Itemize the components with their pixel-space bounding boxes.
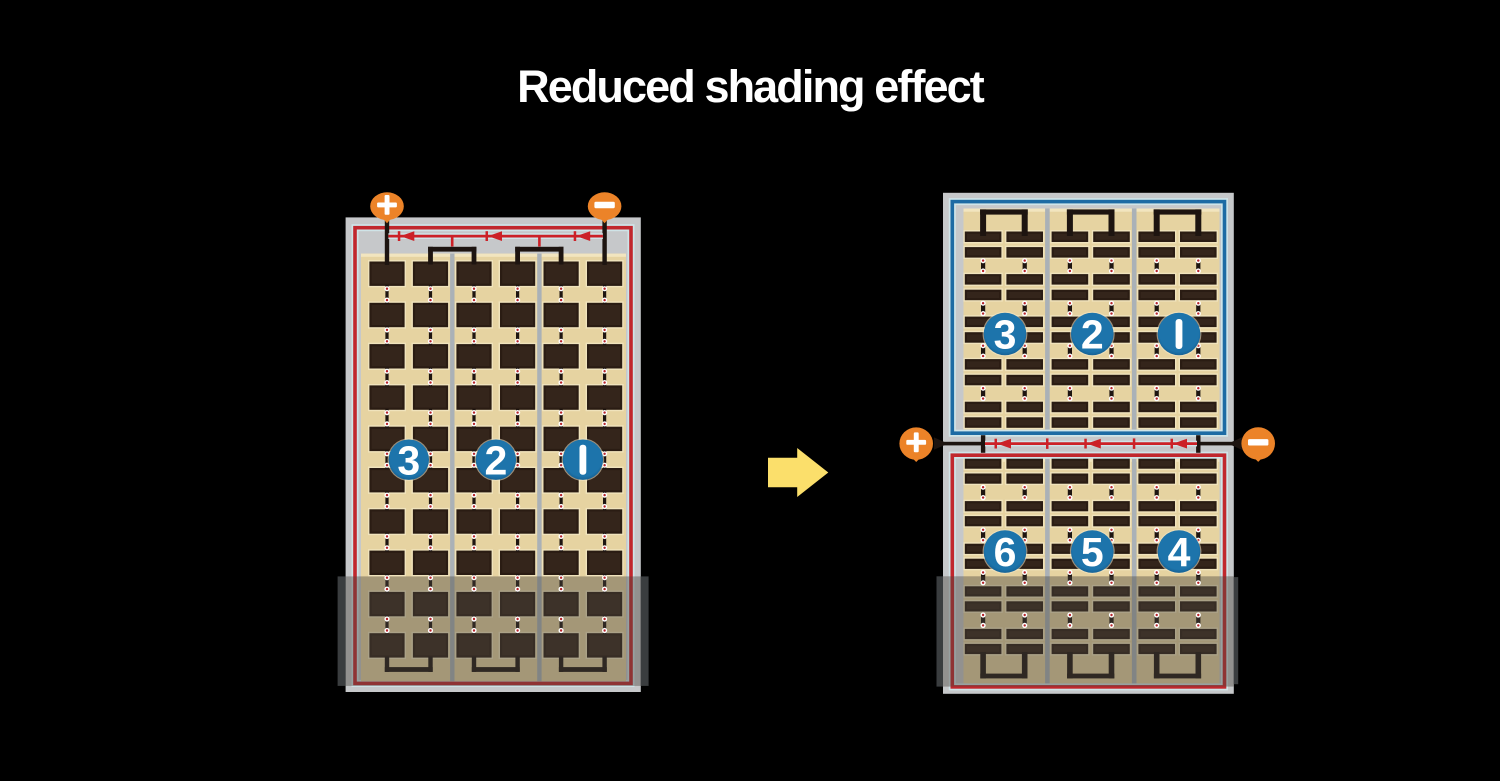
svg-text:2: 2 (484, 437, 507, 483)
svg-text:6: 6 (994, 529, 1017, 575)
svg-text:3: 3 (397, 437, 420, 483)
svg-text:3: 3 (994, 312, 1017, 358)
svg-text:2: 2 (1081, 312, 1104, 358)
svg-text:4: 4 (1168, 529, 1191, 575)
svg-text:5: 5 (1081, 529, 1104, 575)
